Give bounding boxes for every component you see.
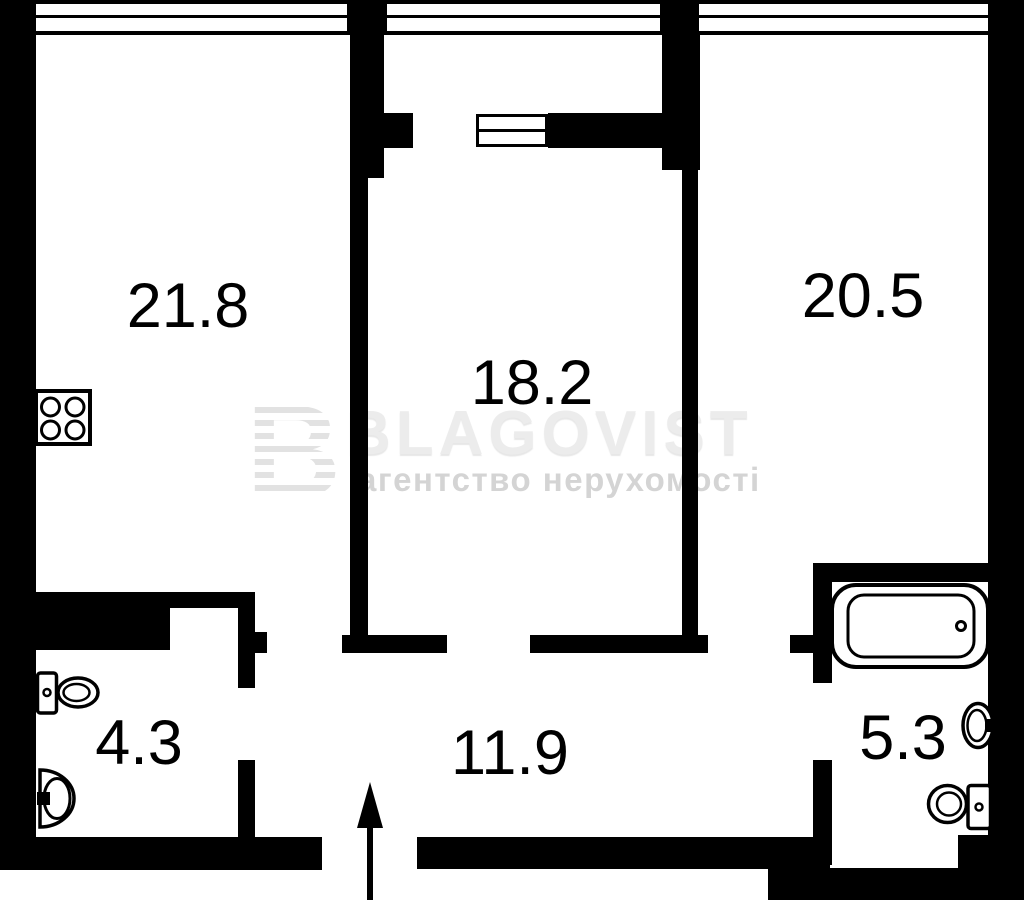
room-area-label: 5.3 (859, 702, 947, 774)
top-wall-segment-b (660, 0, 699, 35)
toilet-icon (924, 781, 994, 833)
watermark-tagline-text: агентство нерухомості (358, 461, 761, 499)
balcony-wall-right (548, 113, 662, 148)
bathroom-right-left-wall-lower (813, 760, 832, 865)
hallway-wall-segment-2 (530, 635, 708, 653)
partition-right-lower (682, 170, 698, 635)
bottom-wall-left (0, 837, 322, 870)
hallway-wall-segment-1 (342, 635, 447, 653)
sink-icon (34, 766, 78, 832)
window-divider (699, 15, 988, 18)
partition-left-upper (350, 35, 384, 178)
room-area-label: 21.8 (127, 270, 250, 342)
bathtub-icon (828, 581, 994, 671)
outer-wall-left (0, 0, 36, 870)
bottom-wall-right (417, 837, 830, 869)
hallway-wall-segment-3 (790, 635, 815, 653)
balcony-window-icon (476, 114, 548, 147)
bathroom-left-right-wall-lower (238, 760, 255, 837)
partition-left-lower (350, 178, 368, 635)
brand-logo-stripes (246, 394, 348, 512)
bathroom-left-door-jamb (255, 632, 267, 653)
window-divider (479, 129, 545, 132)
top-wall-segment-a (347, 0, 387, 35)
bathroom-left-right-wall-upper (238, 650, 255, 688)
partition-right-upper (662, 35, 700, 170)
balcony-wall-left (384, 113, 413, 148)
window-divider (387, 15, 660, 18)
room-area-label: 20.5 (802, 260, 925, 332)
room-area-label: 4.3 (95, 707, 183, 779)
window-top-left (36, 0, 347, 35)
room-area-label: 18.2 (471, 347, 594, 419)
entry-arrow-icon (353, 778, 387, 900)
window-top-middle (387, 0, 660, 35)
bathroom-right-bottom-wall (768, 868, 1024, 900)
stove-icon (33, 388, 93, 447)
window-top-right (699, 0, 988, 35)
brand-logo: B (246, 394, 348, 512)
window-divider (36, 15, 347, 18)
sink-icon (959, 699, 999, 753)
floor-plan: B BLAGOVIST агентство нерухомості (0, 0, 1024, 900)
toilet-icon (33, 668, 103, 720)
bathroom-left-niche (170, 608, 238, 650)
room-area-label: 11.9 (451, 717, 569, 789)
bathroom-right-top-wall (813, 563, 990, 582)
